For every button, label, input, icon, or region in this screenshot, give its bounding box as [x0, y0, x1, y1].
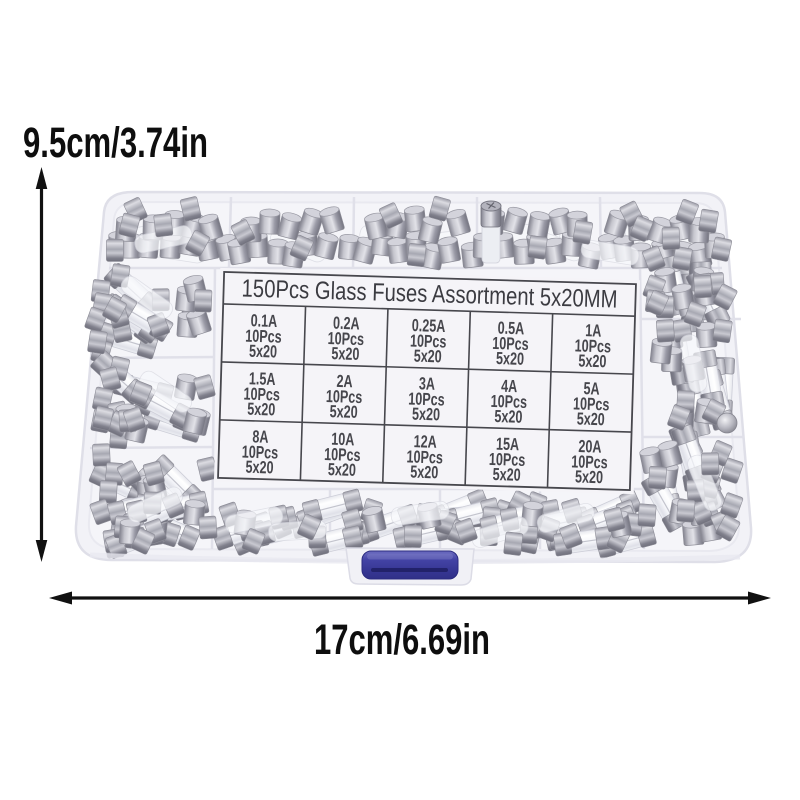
svg-text:5x20: 5x20 [576, 408, 605, 429]
svg-text:9.5cm/3.74in: 9.5cm/3.74in [23, 119, 208, 167]
svg-text:5x20: 5x20 [249, 341, 278, 362]
svg-text:5x20: 5x20 [578, 350, 607, 371]
svg-text:5x20: 5x20 [494, 406, 523, 427]
svg-text:5x20: 5x20 [329, 401, 358, 422]
svg-text:5x20: 5x20 [331, 343, 360, 364]
svg-text:5x20: 5x20 [410, 462, 439, 483]
svg-text:5x20: 5x20 [413, 346, 442, 367]
svg-text:17cm/6.69in: 17cm/6.69in [314, 616, 490, 664]
svg-text:5x20: 5x20 [328, 459, 357, 480]
svg-text:5x20: 5x20 [575, 466, 604, 487]
svg-text:5x20: 5x20 [247, 399, 276, 420]
svg-text:5x20: 5x20 [245, 457, 274, 478]
svg-text:5x20: 5x20 [412, 404, 441, 425]
svg-text:5x20: 5x20 [492, 464, 521, 485]
svg-text:5x20: 5x20 [496, 348, 525, 369]
